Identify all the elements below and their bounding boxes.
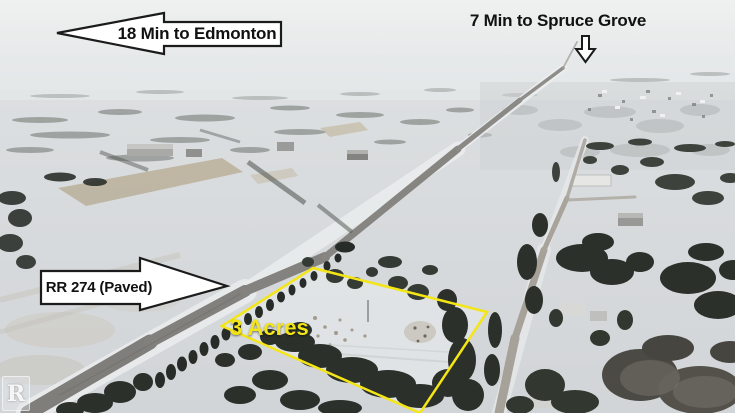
- spruce-grove-down-arrow-icon: [576, 36, 595, 62]
- realtor-watermark-logo: R: [2, 376, 30, 411]
- spruce-grove-label: 7 Min to Spruce Grove: [466, 11, 650, 31]
- property-boundary-polygon: [222, 268, 487, 413]
- annotation-overlay: [0, 0, 735, 413]
- rr274-label: RR 274 (Paved): [42, 277, 156, 298]
- edmonton-label: 18 Min to Edmonton: [116, 24, 278, 44]
- aerial-photo: 18 Min to Edmonton 7 Min to Spruce Grove…: [0, 0, 735, 413]
- acres-label: 3 Acres: [230, 318, 330, 338]
